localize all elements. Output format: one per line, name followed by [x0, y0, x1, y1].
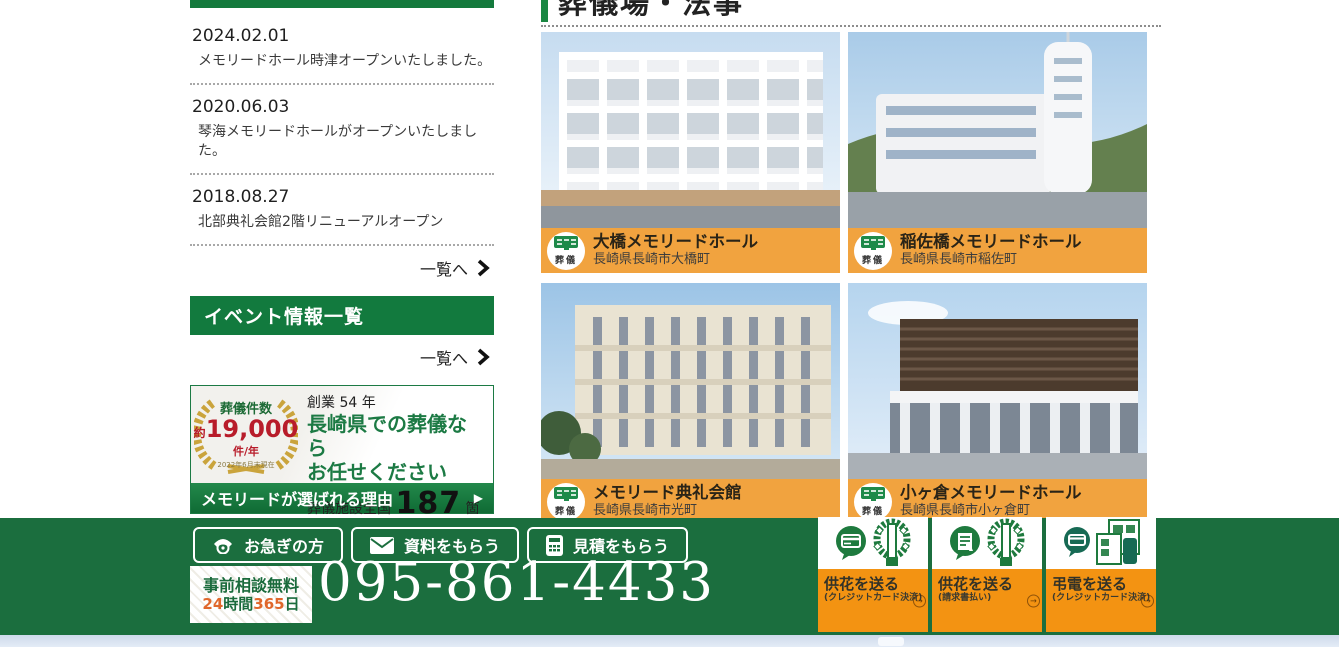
- funeral-hall-icon: 葬儀: [547, 232, 585, 270]
- badge-note: 2022年6月末現在: [217, 460, 274, 470]
- promo-founded: 創業 54 年: [307, 392, 485, 412]
- news-item[interactable]: 2018.08.27 北部典礼会館2階リニューアルオープン: [190, 175, 494, 246]
- consultation-line2: 24時間365日: [202, 595, 299, 613]
- telegram-icon: [1095, 518, 1141, 568]
- banner-strip: 弔電を送る (クレジットカード決済) →: [1046, 569, 1156, 632]
- arrow-circle-icon: →: [913, 594, 926, 607]
- footer-banners: 供花を送る (クレジットカード決済) →: [818, 517, 1156, 632]
- hall-card-tenrei-kaikan[interactable]: 葬儀 メモリード典礼会館 長崎県長崎市光町: [541, 283, 840, 524]
- hall-badge-label: 葬儀: [862, 504, 884, 517]
- hall-address: 長崎県長崎市光町: [593, 503, 742, 519]
- hall-cards-grid: 葬儀 大橋メモリードホール 長崎県長崎市大橋町: [541, 32, 1148, 524]
- event-section-header: イベント情報一覧: [190, 296, 494, 335]
- badge-unit: 件/年: [233, 443, 259, 459]
- banner-subtitle: (クレジットカード決済): [824, 593, 924, 605]
- sidebar: 2024.02.01 メモリードホール時津オープンいたしました。 2020.06…: [190, 0, 494, 606]
- card-label: 葬儀 大橋メモリードホール 長崎県長崎市大橋町: [541, 228, 840, 273]
- banner-strip: 供花を送る (請求書払い) →: [932, 569, 1042, 632]
- hall-address: 長崎県長崎市稲佐町: [900, 252, 1082, 268]
- banner-title: 供花を送る: [938, 576, 1038, 593]
- news-list: 2024.02.01 メモリードホール時津オープンいたしました。 2020.06…: [190, 14, 494, 246]
- chevron-right-icon: [476, 259, 490, 277]
- building-photo: [848, 283, 1147, 479]
- building-glyph-icon: [554, 487, 578, 503]
- badge-number-value: 19,000: [206, 415, 299, 443]
- building-photo: [541, 283, 840, 479]
- badge-number: 約19,000: [194, 417, 299, 442]
- hall-address: 長崎県長崎市大橋町: [593, 252, 758, 268]
- contact-footer: お急ぎの方 資料をもらう 見積をもらう 事前相談無料 24時間365日 095-…: [0, 518, 1339, 635]
- facilities-number: 187: [395, 486, 461, 521]
- banner-subtitle: (クレジットカード決済): [1052, 593, 1152, 605]
- send-flowers-invoice-banner[interactable]: 供花を送る (請求書払い) →: [932, 517, 1042, 632]
- main-heading: 葬儀場・法事: [541, 0, 1161, 27]
- funeral-count-badge: 葬儀件数 約19,000 件/年 2022年6月末現在: [191, 386, 301, 483]
- promo-banner[interactable]: 葬儀件数 約19,000 件/年 2022年6月末現在 創業 54 年 長崎県で…: [190, 385, 494, 514]
- building-photo: [848, 32, 1147, 228]
- hall-badge-label: 葬儀: [555, 504, 577, 517]
- news-header-bar: [190, 0, 494, 8]
- hall-card-kogakura[interactable]: 葬儀 小ヶ倉メモリードホール 長崎県長崎市小ヶ倉町: [848, 283, 1147, 524]
- funeral-hall-icon: 葬儀: [547, 483, 585, 521]
- card-label: 葬儀 稲佐橋メモリードホール 長崎県長崎市稲佐町: [848, 228, 1147, 273]
- hall-badge-label: 葬儀: [555, 253, 577, 266]
- news-more-label: 一覧へ: [420, 256, 468, 280]
- event-more-link[interactable]: 一覧へ: [190, 335, 494, 375]
- send-telegram-banner[interactable]: 弔電を送る (クレジットカード決済) →: [1046, 517, 1156, 632]
- arrow-circle-icon: →: [1141, 594, 1154, 607]
- hall-name: 大橋メモリードホール: [593, 233, 758, 252]
- building-glyph-icon: [861, 236, 885, 252]
- banner-title: 弔電を送る: [1052, 576, 1152, 593]
- bottom-strip: [0, 635, 1339, 647]
- news-item[interactable]: 2024.02.01 メモリードホール時津オープンいたしました。: [190, 14, 494, 85]
- hours-label: 時間: [223, 595, 253, 613]
- news-text: 琴海メモリードホールがオープンいたしました。: [190, 123, 494, 161]
- news-item[interactable]: 2020.06.03 琴海メモリードホールがオープンいたしました。: [190, 85, 494, 175]
- funeral-wreath-icon: [985, 518, 1027, 568]
- phone-icon: [212, 536, 234, 554]
- promo-line2: お任せください: [307, 460, 485, 484]
- credit-card-bubble-icon: [834, 525, 868, 561]
- news-date: 2018.08.27: [192, 187, 494, 207]
- hall-card-inasabashi[interactable]: 葬儀 稲佐橋メモリードホール 長崎県長崎市稲佐町: [848, 32, 1147, 273]
- arrow-circle-icon: →: [1027, 594, 1040, 607]
- news-text: メモリードホール時津オープンいたしました。: [190, 52, 494, 71]
- promo-cta-label: メモリードが選ばれる理由: [201, 486, 393, 510]
- hall-name: 小ヶ倉メモリードホール: [900, 484, 1082, 503]
- days-label: 日: [285, 595, 300, 613]
- badge-approx: 約: [194, 426, 206, 440]
- days-number: 365: [253, 595, 284, 613]
- event-more-label: 一覧へ: [420, 345, 468, 369]
- promo-content: 葬儀件数 約19,000 件/年 2022年6月末現在 創業 54 年 長崎県で…: [191, 386, 493, 483]
- building-glyph-icon: [861, 487, 885, 503]
- chevron-right-icon: [476, 348, 490, 366]
- credit-card-bubble-icon: [1062, 526, 1092, 560]
- promo-line1: 長崎県での葬儀なら: [307, 412, 485, 460]
- hall-card-oohashi[interactable]: 葬儀 大橋メモリードホール 長崎県長崎市大橋町: [541, 32, 840, 273]
- invoice-bubble-icon: [948, 525, 982, 561]
- play-arrow-icon: ▶: [474, 491, 483, 505]
- hall-name: 稲佐橋メモリードホール: [900, 233, 1082, 252]
- building-photo: [541, 32, 840, 228]
- news-date: 2020.06.03: [192, 97, 494, 117]
- funeral-hall-icon: 葬儀: [854, 483, 892, 521]
- free-consultation-box: 事前相談無料 24時間365日: [190, 566, 312, 623]
- news-more-link[interactable]: 一覧へ: [190, 246, 494, 286]
- promo-text-block: 創業 54 年 長崎県での葬儀なら お任せください 葬儀施設全国 187 箇所 …: [301, 386, 493, 483]
- phone-number[interactable]: 095-861-4433: [318, 554, 715, 612]
- funeral-hall-icon: 葬儀: [854, 232, 892, 270]
- news-text: 北部典礼会館2階リニューアルオープン: [190, 213, 494, 232]
- urgent-button-label: お急ぎの方: [244, 533, 324, 557]
- banner-title: 供花を送る: [824, 576, 924, 593]
- hours-number: 24: [202, 595, 223, 613]
- funeral-wreath-icon: [871, 518, 913, 568]
- scrollbar-thumb[interactable]: [878, 637, 904, 646]
- banner-strip: 供花を送る (クレジットカード決済) →: [818, 569, 928, 632]
- hall-badge-label: 葬儀: [862, 253, 884, 266]
- send-flowers-credit-banner[interactable]: 供花を送る (クレジットカード決済) →: [818, 517, 928, 632]
- consultation-line1: 事前相談無料: [203, 576, 299, 595]
- banner-subtitle: (請求書払い): [938, 593, 1038, 605]
- heading-accent-bar: [541, 0, 548, 22]
- mail-icon: [370, 537, 394, 554]
- building-glyph-icon: [554, 236, 578, 252]
- hall-name: メモリード典礼会館: [593, 484, 742, 503]
- news-date: 2024.02.01: [192, 26, 494, 46]
- page-title: 葬儀場・法事: [558, 0, 744, 22]
